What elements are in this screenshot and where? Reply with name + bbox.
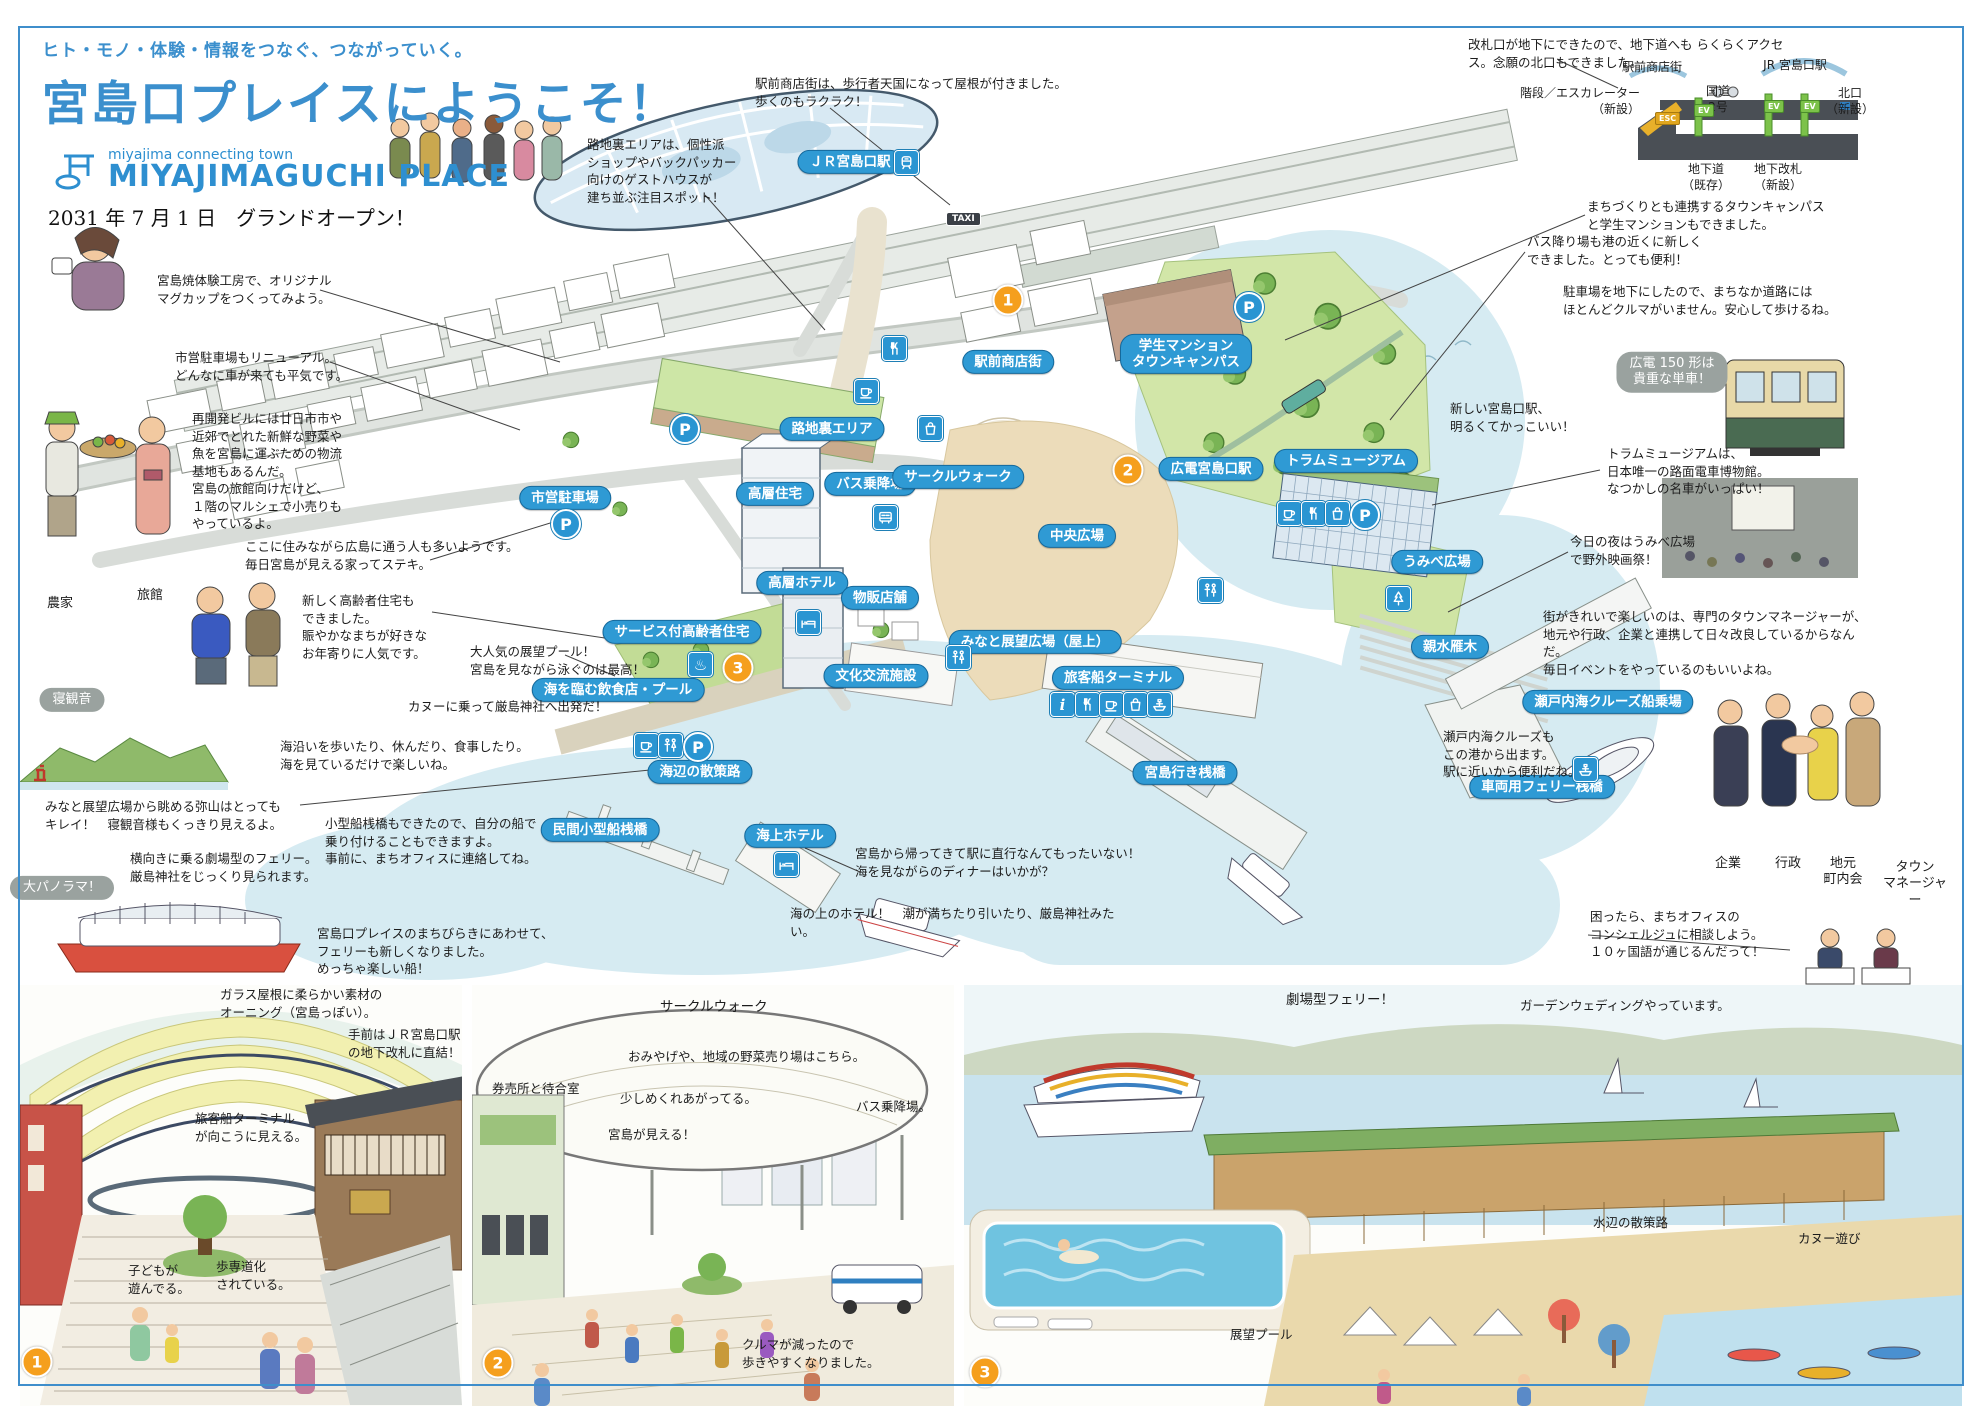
- map-callout: 海沿いを歩いたり、休んだり、食事したり。 海を見ているだけで楽しいね。: [280, 738, 529, 773]
- p-icon: P: [551, 509, 581, 539]
- section-diagram-tag: EV: [1800, 100, 1820, 113]
- panel-caption: 子どもが 遊んでる。: [128, 1262, 190, 1297]
- map-callout: カヌーに乗って厳島神社へ出発だ！: [408, 698, 607, 716]
- speech-bubble: 大パノラマ！: [10, 876, 114, 900]
- panel-caption: 少しめくれあがってる。: [620, 1090, 757, 1108]
- map-callout: 市営駐車場もリニューアル。 どんなに車が来ても平気です。: [175, 349, 348, 384]
- panel-caption: クルマが減ったので 歩きやすくなりました。: [742, 1336, 880, 1371]
- section-diagram-label: JR 宮島口駅: [1763, 58, 1827, 74]
- panel-number-badge: 2: [483, 1348, 514, 1379]
- panel-caption: 宮島が見える！: [608, 1126, 695, 1144]
- section-diagram-tag: EV: [1764, 100, 1784, 113]
- p-icon: P: [1350, 500, 1380, 530]
- map-callout: 瀬戸内海クルーズも この港から出ます。 駅に近いから便利だね。: [1443, 728, 1581, 781]
- wc-icon: [658, 733, 683, 758]
- panel-caption: 劇場型フェリー！: [1286, 991, 1394, 1010]
- panel-caption: サークルウォーク: [660, 998, 768, 1017]
- map-callout: 新しい宮島口駅、 明るくてかっこいい！: [1450, 400, 1575, 435]
- map-label-pill: 高層ホテル: [756, 571, 848, 595]
- map-label-pill: 宮島行き桟橋: [1133, 761, 1238, 785]
- person-label: 行政: [1775, 856, 1801, 872]
- wc-icon: [946, 645, 971, 670]
- fork-icon: [1075, 692, 1100, 717]
- p-icon: P: [670, 414, 700, 444]
- map-label-pill: うみべ広場: [1391, 550, 1483, 574]
- bag-icon: [1123, 692, 1148, 717]
- map-number-badge: 1: [993, 285, 1024, 316]
- poster-title: 宮島口プレイスにようこそ！: [42, 65, 678, 134]
- map-label-pill: サークルウォーク: [892, 465, 1024, 489]
- info-icon: i: [1050, 692, 1075, 717]
- poster: ヒト・モノ・体験・情報をつなぐ、つながっていく。 宮島口プレイスにようこそ！ m…: [0, 0, 1980, 1406]
- panel-caption: バス乗降場。: [856, 1098, 931, 1116]
- map-callout: 駐車場を地下にしたので、まちなか道路には ほとんどクルマがいません。安心して歩け…: [1563, 283, 1837, 318]
- cup-icon: [1099, 692, 1124, 717]
- map-callout: 街がきれいで楽しいのは、専門のタウンマネージャーが、 地元や行政、企業と連携して…: [1543, 608, 1873, 678]
- map-callout: 困ったら、まちオフィスの コンシェルジュに相談しよう。 １０ヶ国語が通じるんだっ…: [1590, 908, 1764, 961]
- p-icon: P: [683, 732, 713, 762]
- cup-icon: [634, 733, 659, 758]
- map-callout: 横向きに乗る劇場型のフェリー。 厳島神社をじっくり見られます。: [130, 850, 317, 885]
- map-callout: バス降り場も港の近くに新しく できました。とっても便利！: [1527, 233, 1702, 268]
- cup-icon: [854, 379, 879, 404]
- speech-bubble: 広電 150 形は 貴重な単車！: [1616, 352, 1727, 393]
- panel-caption: 歩専道化 されている。: [216, 1258, 291, 1293]
- taxi-icon: TAXI: [946, 212, 981, 226]
- panel-caption: 旅客船ターミナル が向こうに見える。: [195, 1110, 307, 1145]
- section-diagram-label: 駅前商店街: [1622, 60, 1682, 76]
- fork-icon: [1301, 501, 1326, 526]
- bag-icon: [918, 416, 943, 441]
- map-label-pill: トラムミュージアム: [1274, 449, 1418, 473]
- cup-icon: [1277, 501, 1302, 526]
- map-label-pill: 親水雁木: [1411, 635, 1489, 659]
- bed-icon: [774, 852, 799, 877]
- map-label-pill: みなと展望広場（屋上）: [949, 630, 1122, 654]
- map-label-pill: 海辺の散策路: [648, 760, 753, 784]
- panel-caption: カヌー遊び: [1798, 1230, 1861, 1248]
- map-label-pill: 海上ホテル: [744, 824, 836, 848]
- speech-bubble: 寝観音: [39, 688, 104, 712]
- panel-caption: おみやげや、地域の野菜売り場はこちら。: [628, 1048, 865, 1066]
- person-label: 企業: [1715, 856, 1741, 872]
- map-callout: 海の上のホテル！ 潮が満ちたり引いたり、厳島神社みたい。: [790, 905, 1120, 940]
- map-label-pill: 中央広場: [1038, 524, 1116, 548]
- map-label-pill: 学生マンション タウンキャンパス: [1120, 334, 1252, 374]
- section-diagram-tag: ESC: [1655, 112, 1680, 125]
- section-diagram-label: 北口 （新設）: [1826, 86, 1874, 117]
- map-label-pill: 文化交流施設: [824, 664, 929, 688]
- map-label-pill: 物販店舗: [841, 586, 919, 610]
- header: ヒト・モノ・体験・情報をつなぐ、つながっていく。 宮島口プレイスにようこそ！ m…: [42, 36, 678, 231]
- map-callout: 宮島から帰ってきて駅に直行なんてもったいない！ 海を見ながらのディナーはいかが？: [855, 845, 1140, 880]
- logo-main: MIYAJIMAGUCHI PLACE: [108, 162, 510, 192]
- map-callout: 駅前商店街は、歩行者天国になって屋根が付きました。 歩くのもラクラク！: [755, 75, 1067, 110]
- map-callout: みなと展望広場から眺める弥山はとっても キレイ！ 寝観音様もくっきり見えるよ。: [45, 798, 282, 833]
- map-callout: 新しく高齢者住宅も できました。 賑やかなまちが好きな お年寄りに人気です。: [302, 592, 427, 662]
- panel-number-badge: 1: [22, 1347, 53, 1378]
- bag-icon: [1325, 501, 1350, 526]
- map-callout: トラムミュージアムは、 日本唯一の路面電車博物館。 なつかしの名車がいっぱい！: [1607, 445, 1770, 498]
- map-callout: まちづくりとも連携するタウンキャンパス と学生マンションもできました。: [1587, 198, 1825, 233]
- fork-icon: [882, 336, 907, 361]
- map-label-pill: 瀬戸内海クルーズ船乗場: [1522, 690, 1693, 714]
- panel-caption: 手前はＪＲ宮島口駅 の地下改札に直結！: [348, 1026, 461, 1061]
- section-diagram-label: 地下改札 （新設）: [1754, 162, 1802, 193]
- map-callout: 再開発ビルには廿日市市や 近郊でとれた新鮮な野菜や 魚を宮島に運ぶための物流 基…: [192, 410, 342, 533]
- onsen-icon: ♨: [688, 652, 713, 677]
- map-callout: 宮島焼体験工房で、オリジナル マグカップをつくってみよう。: [157, 272, 332, 307]
- map-label-pill: 民間小型船桟橋: [541, 818, 660, 842]
- person-label: 地元 町内会: [1823, 856, 1862, 889]
- map-label-pill: ＪＲ宮島口駅: [798, 150, 903, 174]
- panel-caption: 展望プール: [1230, 1326, 1293, 1344]
- map-label-pill: 駅前商店街: [962, 350, 1054, 374]
- panel-caption: ガラス屋根に柔らかい素材の オーニング（宮島っぽい）。: [220, 986, 382, 1021]
- ship-icon: [1573, 757, 1598, 782]
- map-number-badge: 3: [723, 653, 754, 684]
- map-label-pill: 広電宮島口駅: [1159, 457, 1264, 481]
- wc-icon: [1198, 578, 1223, 603]
- section-diagram-label: 階段／エスカレーター （新設）: [1520, 86, 1640, 117]
- logo: miyajima connecting town MIYAJIMAGUCHI P…: [54, 148, 678, 192]
- map-callout: 宮島口プレイスのまちびらきにあわせて、 フェリーも新しくなりました。 めっちゃ楽…: [317, 925, 554, 978]
- person-label: タウン マネージャー: [1883, 860, 1948, 909]
- tree-icon: [1386, 586, 1411, 611]
- map-label-pill: サービス付高齢者住宅: [603, 620, 762, 644]
- map-label-pill: 路地裏エリア: [780, 417, 885, 441]
- bed-icon: [796, 610, 821, 635]
- section-diagram-tag: EV: [1694, 104, 1714, 117]
- map-callout: ここに住みながら広島に通う人も多いようです。 毎日宮島が見える家ってステキ。: [245, 538, 519, 573]
- map-label-pill: 旅客船ターミナル: [1052, 666, 1184, 690]
- train-icon: [894, 150, 919, 175]
- map-label-pill: 市営駐車場: [519, 486, 611, 510]
- poster-tagline: ヒト・モノ・体験・情報をつなぐ、つながっていく。: [42, 36, 678, 61]
- map-callout: 今日の夜はうみべ広場 で野外映画祭！: [1570, 533, 1695, 568]
- ship-icon: [1147, 692, 1172, 717]
- map-label-pill: 高層住宅: [736, 482, 814, 506]
- section-diagram-label: 地下道 （既存）: [1682, 162, 1730, 193]
- person-label: 旅館: [137, 588, 163, 604]
- panel-caption: 水辺の散策路: [1593, 1214, 1668, 1232]
- panel-caption: ガーデンウェディングやっています。: [1520, 997, 1730, 1015]
- person-label: 農家: [47, 596, 73, 612]
- map-callout: 小型船桟橋もできたので、自分の船で 乗り付けることもできますよ。 事前に、まちオ…: [325, 815, 537, 868]
- p-icon: P: [1234, 292, 1264, 322]
- bus-icon: [873, 505, 898, 530]
- map-number-badge: 2: [1113, 455, 1144, 486]
- torii-logo-icon: [54, 148, 100, 192]
- panel-caption: 券売所と待合室: [492, 1080, 580, 1098]
- panel-number-badge: 3: [970, 1357, 1001, 1388]
- grand-open-date: 2031 年 7 月 1 日 グランドオープン！: [48, 202, 678, 231]
- map-callout: 大人気の展望プール！ 宮島を見ながら泳ぐのは最高！: [470, 643, 645, 678]
